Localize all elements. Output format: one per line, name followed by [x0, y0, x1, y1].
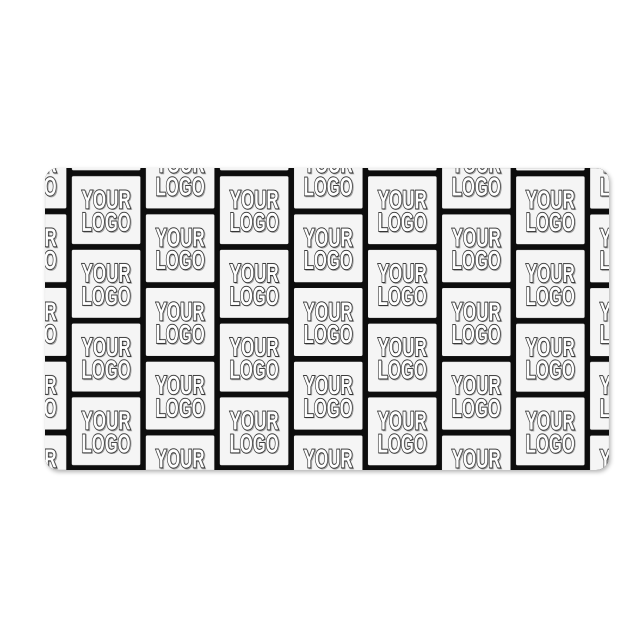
svg-text:LOGO: LOGO: [45, 393, 57, 423]
svg-text:LOGO: LOGO: [600, 245, 609, 275]
svg-text:LOGO: LOGO: [82, 207, 131, 237]
svg-text:LOGO: LOGO: [45, 245, 57, 275]
svg-text:LOGO: LOGO: [156, 171, 205, 201]
svg-text:LOGO: LOGO: [230, 355, 279, 385]
svg-text:LOGO: LOGO: [304, 172, 353, 202]
svg-text:LOGO: LOGO: [600, 319, 609, 349]
svg-text:LOGO: LOGO: [452, 319, 501, 349]
svg-text:LOGO: LOGO: [45, 171, 57, 201]
svg-text:LOGO: LOGO: [452, 467, 501, 470]
svg-text:LOGO: LOGO: [82, 355, 131, 385]
svg-text:LOGO: LOGO: [45, 466, 57, 470]
svg-text:LOGO: LOGO: [230, 281, 279, 311]
svg-text:LOGO: LOGO: [378, 207, 427, 237]
svg-text:LOGO: LOGO: [600, 467, 609, 470]
svg-text:LOGO: LOGO: [82, 428, 131, 458]
svg-text:LOGO: LOGO: [452, 245, 501, 275]
svg-text:LOGO: LOGO: [304, 466, 353, 470]
svg-text:LOGO: LOGO: [378, 428, 427, 458]
svg-text:LOGO: LOGO: [304, 245, 353, 275]
svg-text:LOGO: LOGO: [156, 319, 205, 349]
svg-text:LOGO: LOGO: [304, 393, 353, 423]
svg-text:LOGO: LOGO: [156, 245, 205, 275]
svg-text:LOGO: LOGO: [378, 281, 427, 311]
svg-text:LOGO: LOGO: [526, 428, 575, 458]
svg-text:LOGO: LOGO: [156, 466, 205, 470]
svg-text:LOGO: LOGO: [45, 319, 57, 349]
svg-text:LOGO: LOGO: [600, 172, 609, 202]
svg-text:LOGO: LOGO: [230, 428, 279, 458]
svg-text:LOGO: LOGO: [452, 393, 501, 423]
svg-text:LOGO: LOGO: [156, 393, 205, 423]
svg-text:LOGO: LOGO: [526, 281, 575, 311]
svg-text:LOGO: LOGO: [452, 172, 501, 202]
svg-text:LOGO: LOGO: [600, 393, 609, 423]
svg-text:LOGO: LOGO: [526, 355, 575, 385]
svg-text:LOGO: LOGO: [526, 207, 575, 237]
svg-text:LOGO: LOGO: [82, 281, 131, 311]
svg-text:LOGO: LOGO: [304, 319, 353, 349]
svg-text:LOGO: LOGO: [378, 355, 427, 385]
svg-text:LOGO: LOGO: [230, 207, 279, 237]
